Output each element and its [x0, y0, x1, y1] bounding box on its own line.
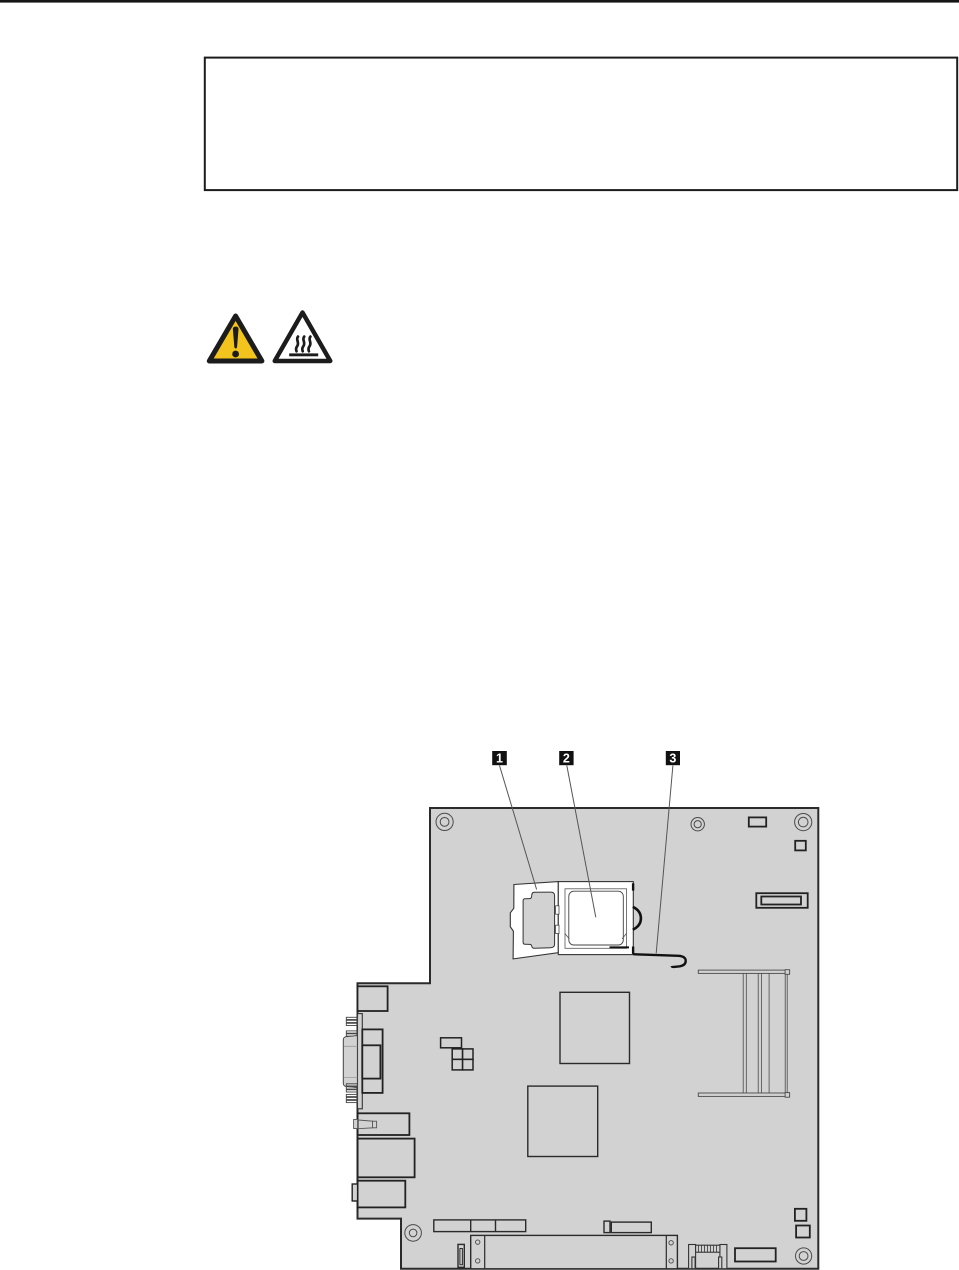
- svg-text:2: 2: [563, 752, 570, 766]
- svg-text:3: 3: [669, 752, 676, 766]
- svg-text:1: 1: [496, 752, 503, 766]
